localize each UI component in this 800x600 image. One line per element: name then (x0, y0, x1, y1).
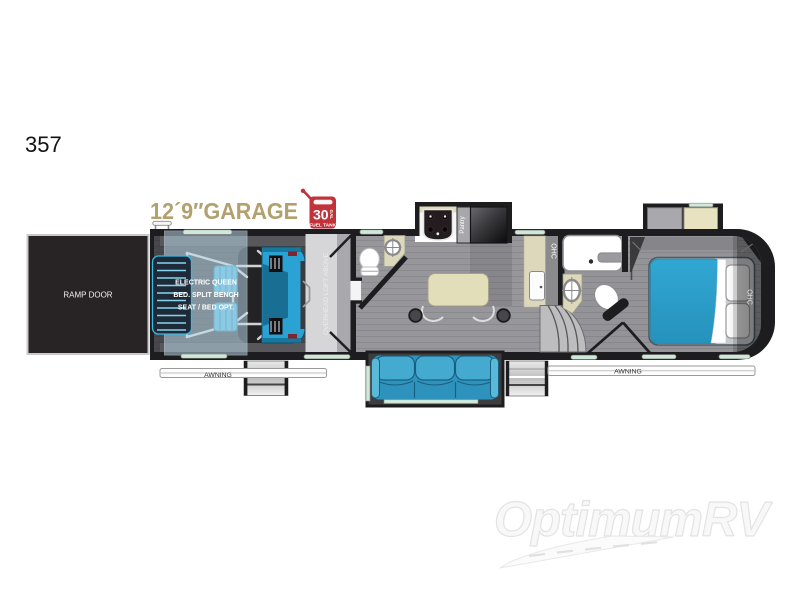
svg-text:SEAT / BED OPT.: SEAT / BED OPT. (178, 305, 234, 312)
svg-text:BED. SPLIT BENCH: BED. SPLIT BENCH (173, 292, 238, 299)
svg-text:357: 357 (25, 132, 62, 157)
svg-text:GAL: GAL (329, 210, 334, 220)
svg-text:OHC: OHC (746, 289, 753, 305)
svg-text:AWNING: AWNING (614, 369, 642, 376)
svg-text:FUEL TANK: FUEL TANK (309, 222, 336, 228)
svg-text:12´9″GARAGE: 12´9″GARAGE (150, 198, 298, 224)
svg-text:RAMP DOOR: RAMP DOOR (63, 291, 112, 300)
svg-text:AWNING: AWNING (204, 372, 232, 379)
svg-text:Pantry: Pantry (460, 216, 466, 233)
svg-text:OHC: OHC (550, 243, 557, 259)
svg-text:OVERHEAD LOFT ABOVE: OVERHEAD LOFT ABOVE (323, 252, 330, 335)
svg-text:ELECTRIC QUEEN: ELECTRIC QUEEN (175, 280, 237, 287)
svg-text:30: 30 (313, 207, 329, 223)
